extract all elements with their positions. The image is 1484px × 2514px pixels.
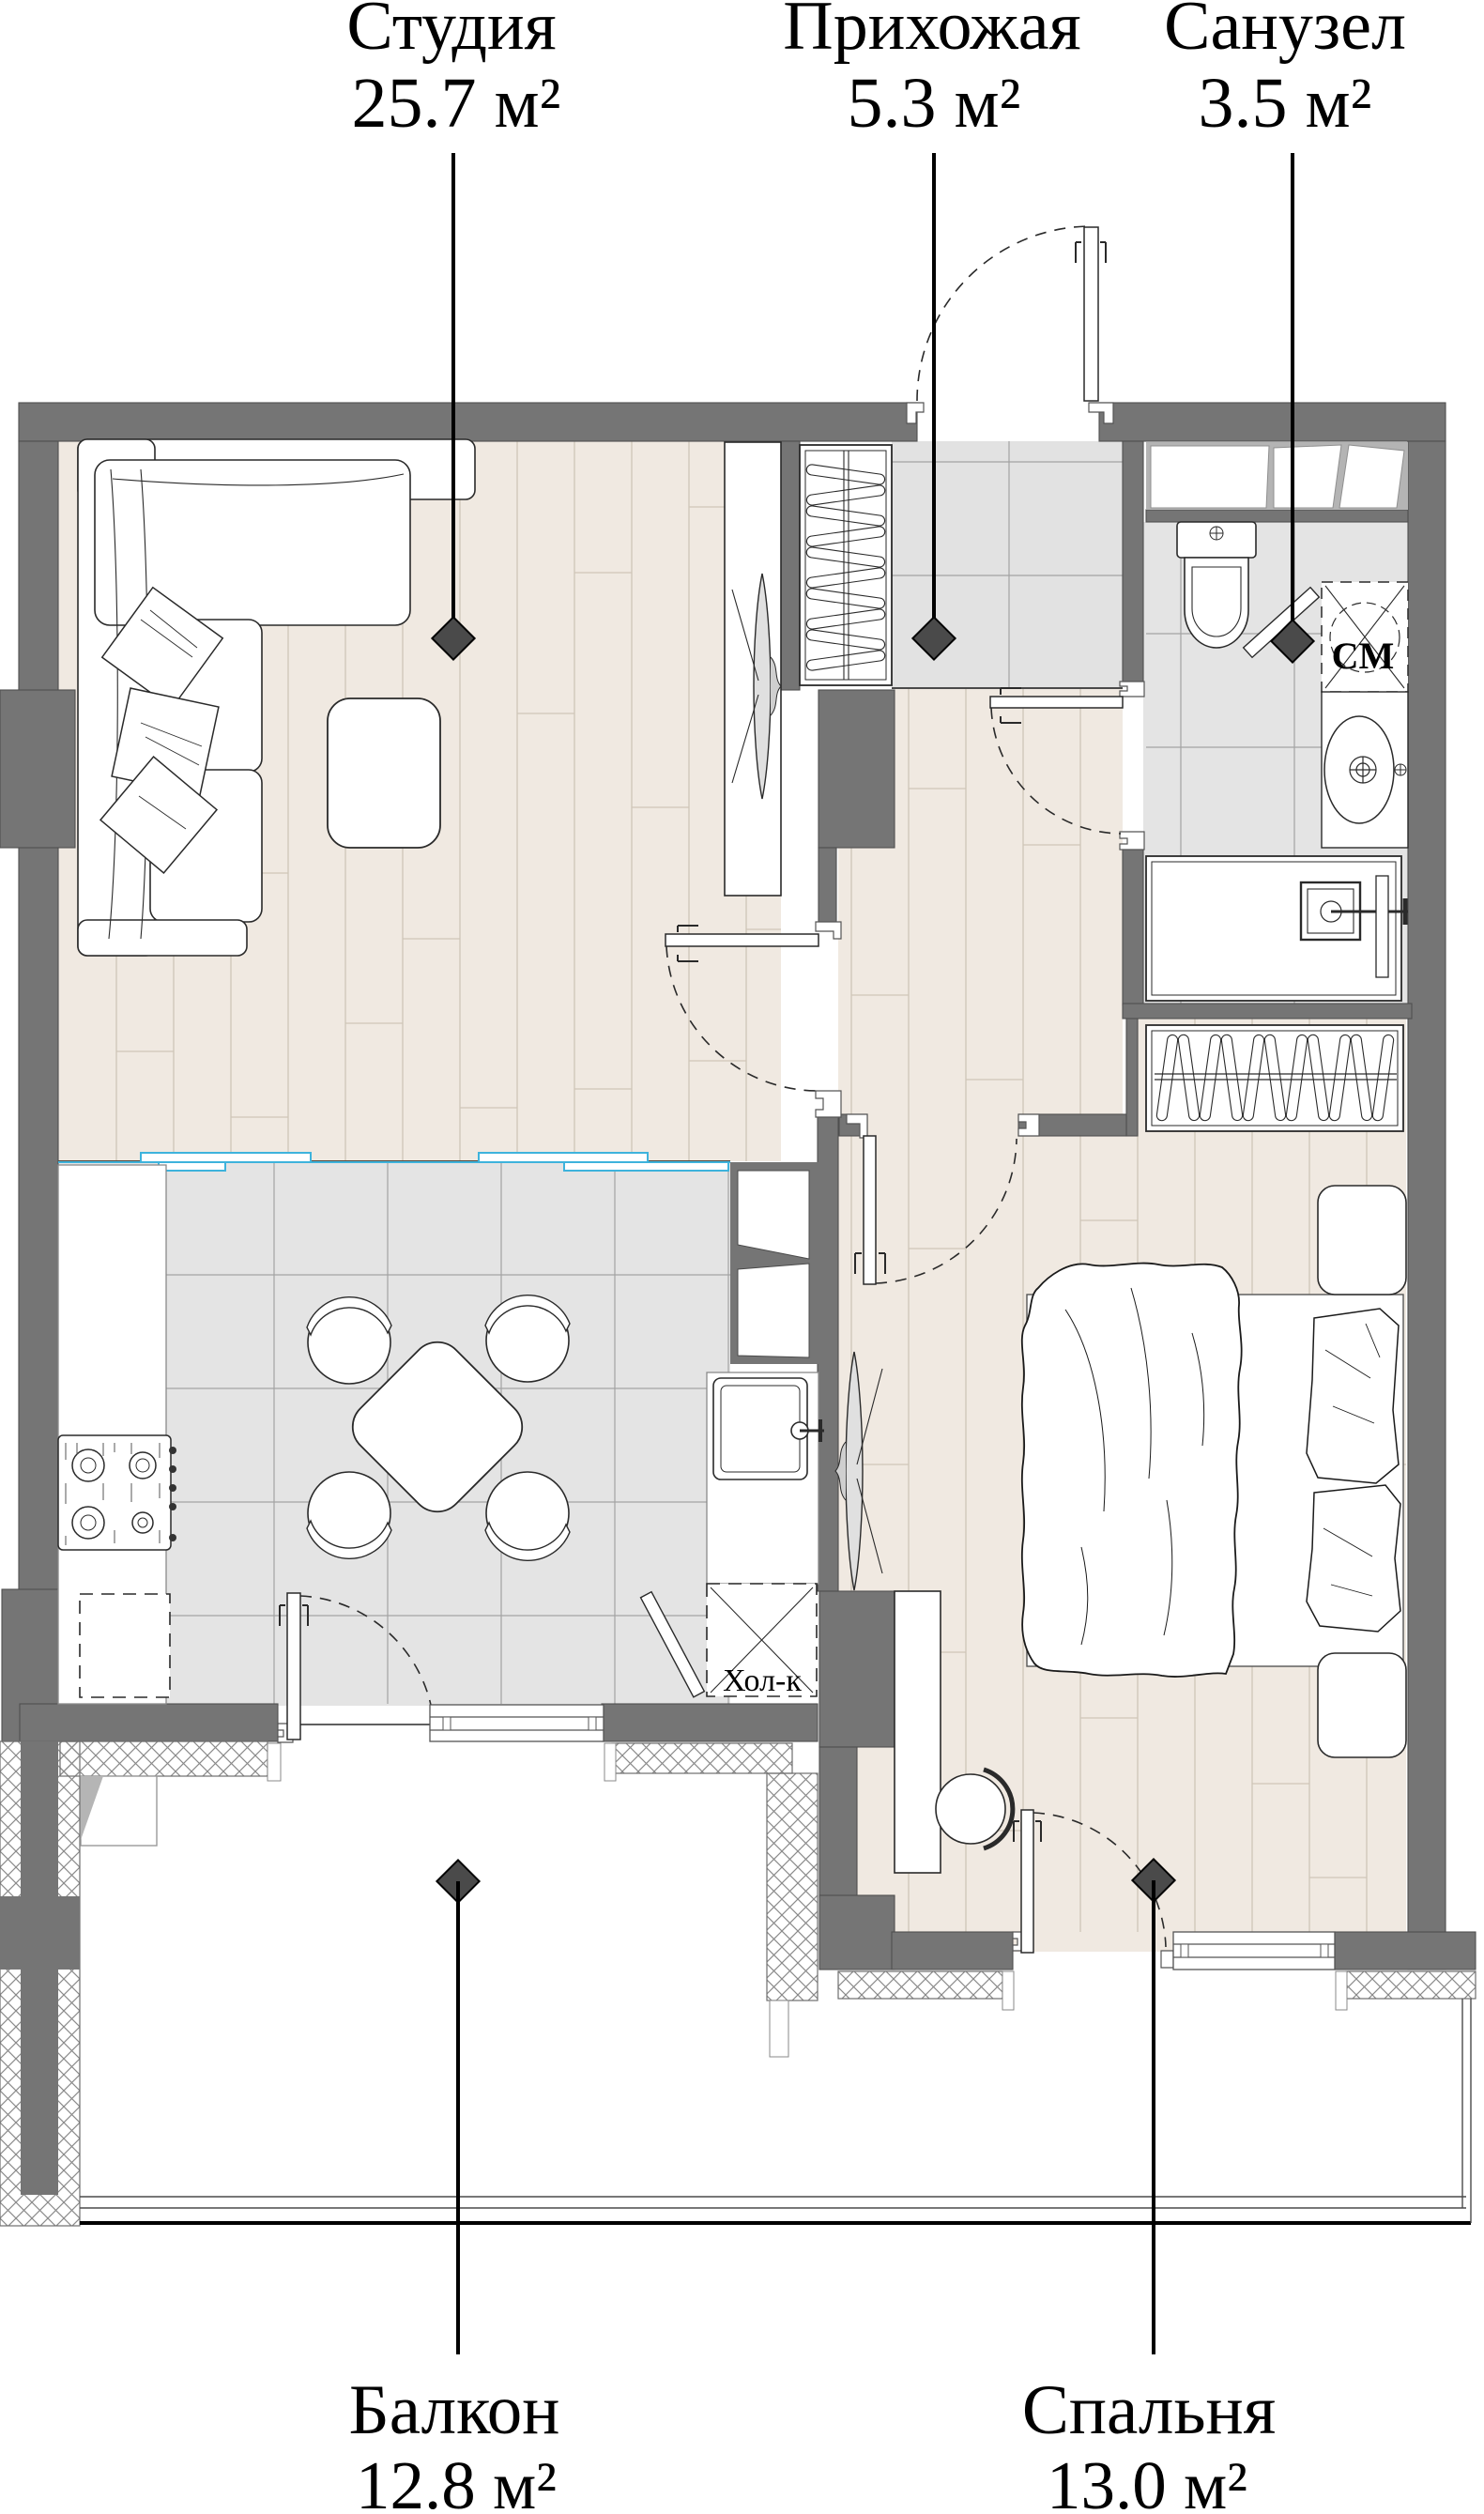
svg-text:Хол-к: Хол-к [723,1663,802,1698]
svg-text:Спальня: Спальня [1022,2371,1276,2449]
svg-text:Студия: Студия [346,0,556,65]
svg-text:СМ: СМ [1332,635,1395,677]
svg-text:Прихожая: Прихожая [783,0,1080,65]
svg-text:5.3 м²: 5.3 м² [848,64,1021,143]
svg-text:Балкон: Балкон [349,2371,560,2449]
svg-text:Санузел: Санузел [1164,0,1406,65]
svg-text:3.5 м²: 3.5 м² [1199,64,1372,143]
svg-text:13.0 м²: 13.0 м² [1047,2447,1247,2514]
svg-text:25.7 м²: 25.7 м² [352,64,561,143]
svg-text:12.8 м²: 12.8 м² [356,2447,557,2514]
